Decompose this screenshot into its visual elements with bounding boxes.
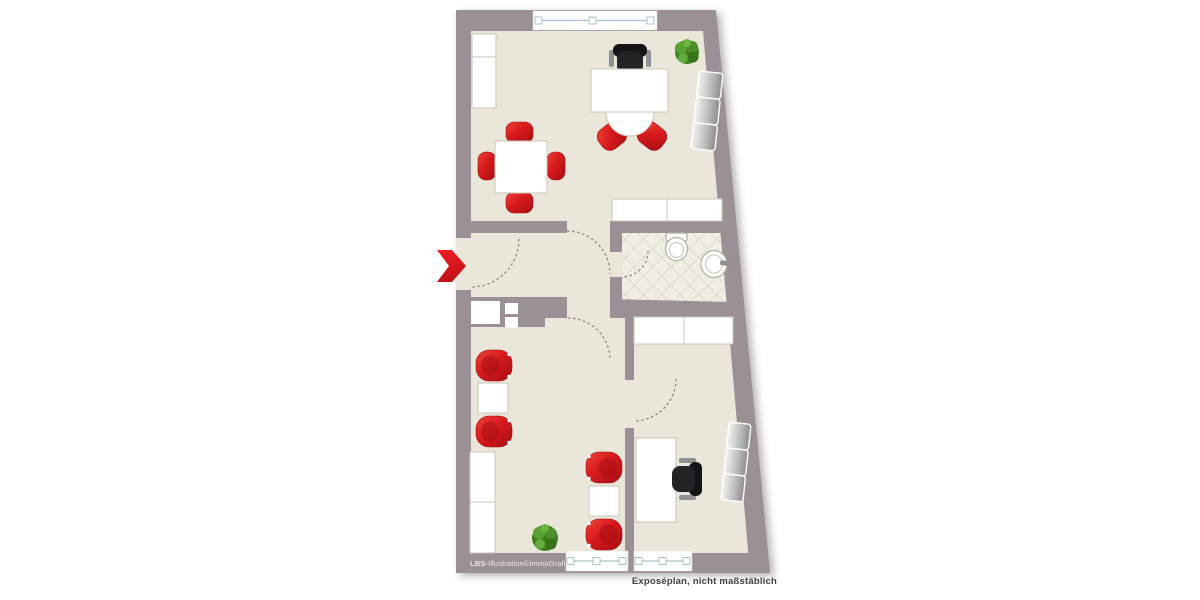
closet-block [456, 297, 545, 327]
dining-chair-left [478, 152, 496, 180]
dining-table [495, 141, 547, 193]
armchair-3 [586, 452, 622, 483]
armchair-1 [476, 350, 512, 381]
desk [591, 69, 668, 112]
outer-wall-left-lower [456, 290, 471, 573]
closet-compartment-small-2 [505, 317, 518, 328]
dining-chair-top [506, 122, 533, 143]
armchair-2 [476, 416, 512, 447]
floorplan-canvas: LBS-Illustration©immoGrafik Exposéplan, … [0, 0, 1200, 600]
wall-rooms-divider-a [625, 318, 634, 380]
wall-bath-left-b [610, 277, 622, 302]
wall-hall-top-left [471, 221, 567, 233]
credit-suffix: -Illustration©immoGrafik [486, 559, 570, 568]
side-table-2 [589, 486, 619, 516]
dining-chair-right [547, 152, 565, 180]
desk-bottom [636, 438, 676, 522]
wardrobe [472, 34, 496, 108]
dining-chair-bottom [506, 192, 533, 213]
wall-hall-bottom-left [545, 297, 567, 318]
window-bottom-right [634, 551, 692, 571]
wall-hall-bottom-right [610, 299, 731, 318]
outer-wall-left-upper [456, 10, 471, 238]
closet-compartment-small-1 [505, 303, 518, 314]
disclaimer-text: Exposéplan, nicht maßstäblich [632, 576, 777, 587]
floorplan-page: LBS-Illustration©immoGrafik Exposéplan, … [0, 0, 1200, 600]
window-top [533, 11, 657, 30]
credit-text: LBS-Illustration©immoGrafik [470, 559, 570, 568]
credit-brand: LBS [470, 559, 486, 568]
plant-icon-top [675, 39, 699, 64]
window-bottom-left [566, 551, 628, 571]
side-table-1 [478, 383, 508, 413]
toilet-icon [666, 233, 688, 261]
wall-bath-left-a [610, 233, 622, 252]
closet-compartment-large [471, 301, 500, 324]
armchair-4 [586, 519, 622, 550]
wall-rooms-divider-b [625, 428, 634, 553]
faucet-icon [720, 260, 729, 266]
wall-hall-top-right [610, 221, 724, 233]
